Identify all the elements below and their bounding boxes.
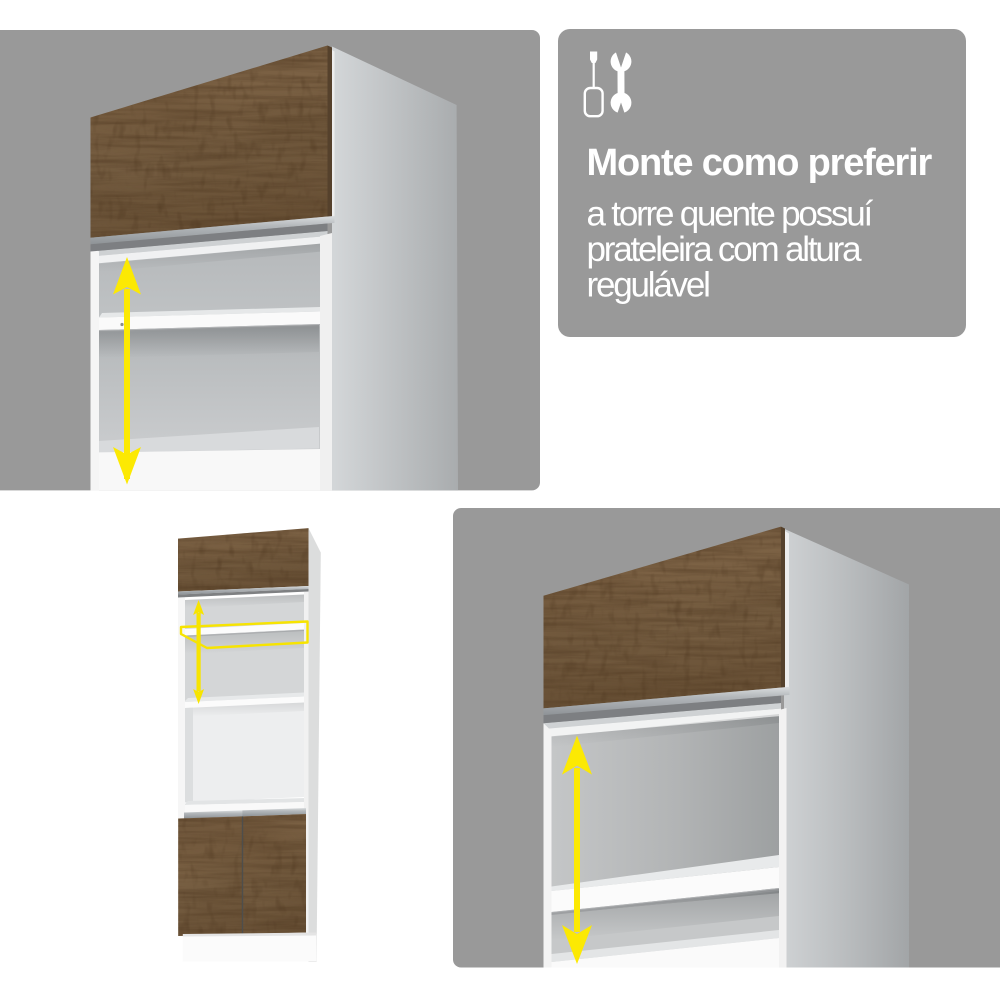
svg-text:regulável: regulável <box>587 266 710 305</box>
svg-text:Monte como preferir: Monte como preferir <box>587 142 933 184</box>
svg-text:prateleira com altura: prateleira com altura <box>587 230 863 269</box>
svg-text:a torre quente possuí: a torre quente possuí <box>587 195 874 234</box>
